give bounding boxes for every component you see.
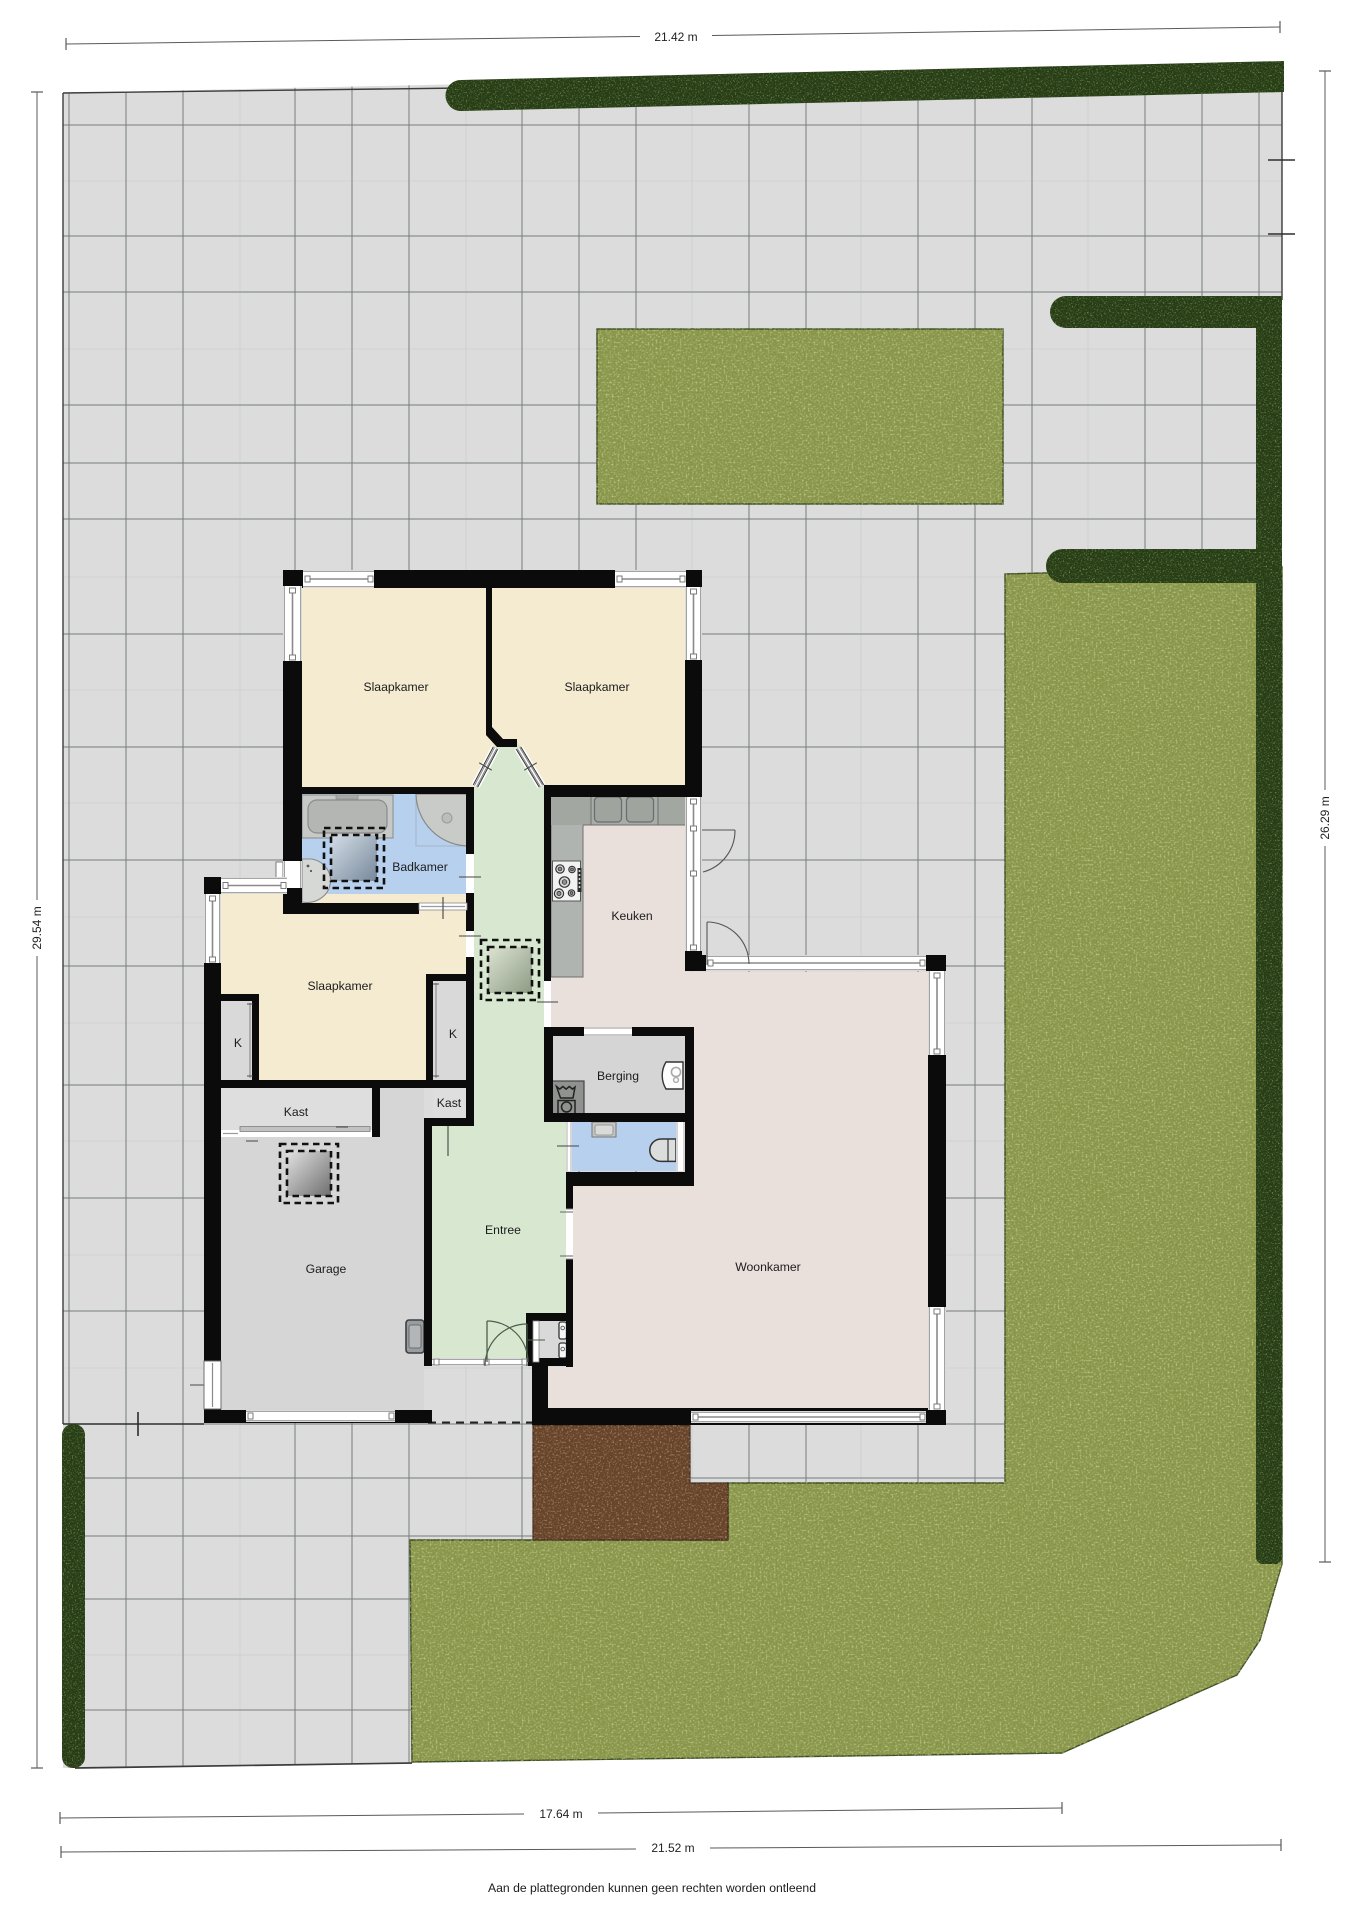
svg-text:K: K — [234, 1036, 242, 1050]
svg-text:Kast: Kast — [284, 1105, 309, 1119]
svg-text:29.54 m: 29.54 m — [30, 906, 44, 949]
svg-text:Slaapkamer: Slaapkamer — [564, 680, 629, 694]
svg-text:Entree: Entree — [485, 1223, 521, 1237]
svg-text:26.29 m: 26.29 m — [1318, 796, 1332, 839]
svg-text:Woonkamer: Woonkamer — [735, 1260, 800, 1274]
svg-text:Aan de plattegronden kunnen ge: Aan de plattegronden kunnen geen rechten… — [488, 1881, 816, 1895]
svg-text:Slaapkamer: Slaapkamer — [307, 979, 372, 993]
svg-text:17.64 m: 17.64 m — [539, 1807, 582, 1821]
svg-text:Kast: Kast — [437, 1096, 462, 1110]
svg-text:Garage: Garage — [306, 1262, 347, 1276]
svg-text:21.52 m: 21.52 m — [651, 1841, 694, 1855]
svg-text:Badkamer: Badkamer — [392, 860, 448, 874]
svg-text:Berging: Berging — [597, 1069, 639, 1083]
svg-text:Keuken: Keuken — [611, 909, 652, 923]
svg-text:K: K — [449, 1027, 457, 1041]
svg-text:Slaapkamer: Slaapkamer — [363, 680, 428, 694]
svg-text:21.42 m: 21.42 m — [654, 30, 697, 44]
